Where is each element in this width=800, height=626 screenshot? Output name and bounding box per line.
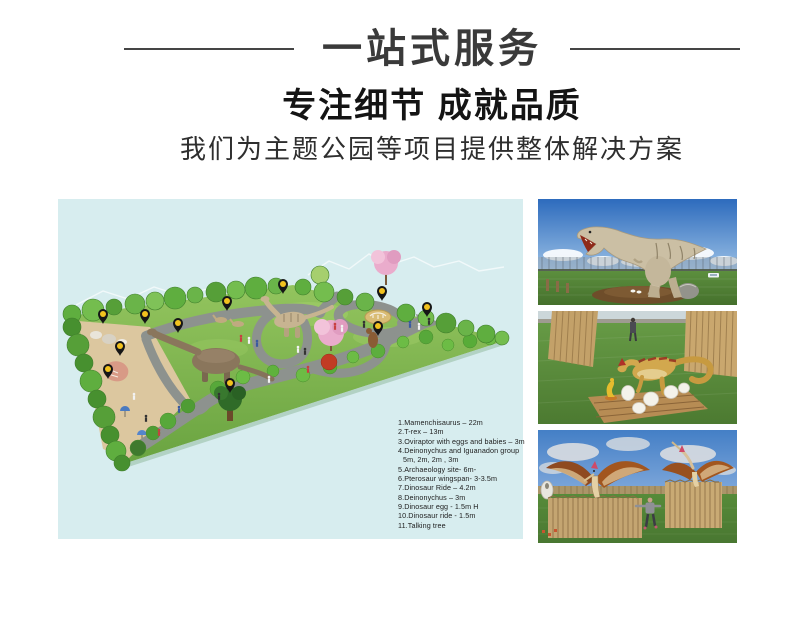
photo-pterosaurs bbox=[538, 430, 737, 543]
photo-trex bbox=[538, 199, 737, 305]
legend-item: 6.Pterosaur wingspan- 3-3.5m bbox=[398, 474, 548, 483]
title-divider-right bbox=[570, 48, 740, 50]
legend-item: 9.Dinosaur egg - 1.5m H bbox=[398, 502, 548, 511]
tagline: 我们为主题公园等项目提供整体解决方案 bbox=[32, 134, 800, 164]
legend-item: 5.Archaeology site- 6m- bbox=[398, 465, 548, 474]
left-palisade bbox=[548, 496, 642, 538]
legend-item: 8.Deinonychus – 3m bbox=[398, 493, 548, 502]
photo-oviraptor-eggs bbox=[538, 311, 737, 424]
legend-item: 5m, 2m, 2m , 3m bbox=[398, 455, 548, 464]
legend-item: 11.Talking tree bbox=[398, 521, 548, 530]
legend-item: 10.Dinosaur ride - 1.5m bbox=[398, 511, 548, 520]
header: 一站式服务 专注细节 成就品质 我们为主题公园等项目提供整体解决方案 bbox=[32, 0, 800, 164]
attraction-legend: 1.Mamenchisaurus – 22m 2.T-rex – 13m 3.O… bbox=[398, 418, 548, 530]
content: 1.Mamenchisaurus – 22m 2.T-rex – 13m 3.O… bbox=[58, 199, 800, 543]
park-masterplan-illustration: 1.Mamenchisaurus – 22m 2.T-rex – 13m 3.O… bbox=[58, 199, 523, 539]
legend-item: 7.Dinosaur Ride – 4.2m bbox=[398, 483, 548, 492]
title-row: 一站式服务 bbox=[32, 26, 800, 72]
page-title: 一站式服务 bbox=[322, 26, 542, 72]
subtitle: 专注细节 成就品质 bbox=[32, 87, 800, 125]
photo-column bbox=[538, 199, 737, 543]
promo-page: 一站式服务 专注细节 成就品质 我们为主题公园等项目提供整体解决方案 bbox=[0, 0, 800, 626]
title-divider-left bbox=[124, 48, 294, 50]
legend-item: 4.Deinonychus and Iguanadon group bbox=[398, 446, 548, 455]
legend-item: 3.Oviraptor with eggs and babies – 3m bbox=[398, 437, 548, 446]
legend-item: 2.T-rex – 13m bbox=[398, 427, 548, 436]
right-palisade bbox=[665, 480, 722, 528]
legend-item: 1.Mamenchisaurus – 22m bbox=[398, 418, 548, 427]
